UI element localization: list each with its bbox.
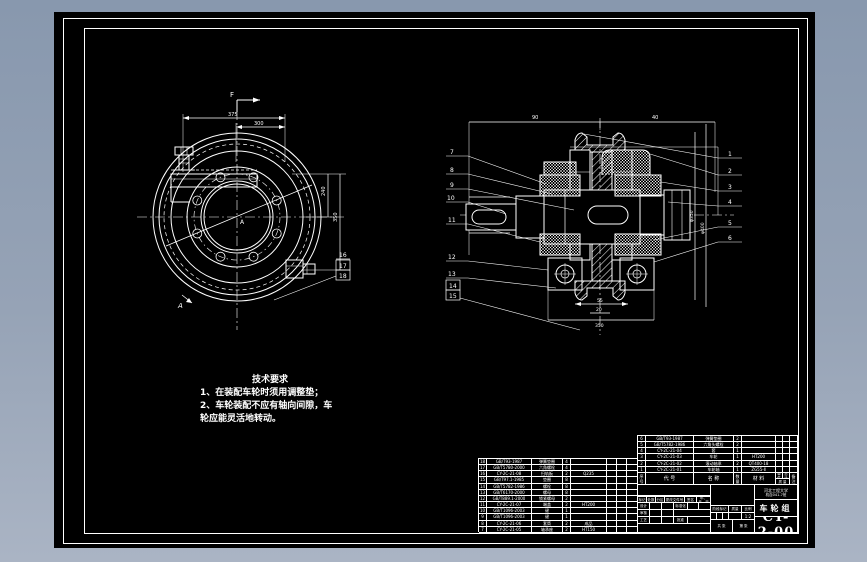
callout-16: 16 [339, 252, 347, 259]
tech-req-line: 轮应能灵活地转动。 [200, 413, 430, 426]
callout-4: 4 [728, 199, 732, 206]
callout-15: 15 [449, 293, 457, 300]
tech-req-title: 技术要求 [200, 374, 430, 387]
callout-7: 7 [450, 149, 454, 156]
tb-org-line2: 机自041-7班 [766, 493, 787, 497]
callout-6: 6 [728, 235, 732, 242]
callout-11: 11 [448, 217, 456, 224]
tb-stage-box [710, 484, 755, 506]
tb-drawing-no: CY-2-00 [754, 516, 798, 533]
callout-3: 3 [728, 184, 732, 191]
bom-cell: CY-2C-21-05 [487, 527, 532, 533]
callout-12: 12 [448, 254, 456, 261]
bom-row: 7CY-2C-21-05轴承座2HT150 [479, 527, 638, 533]
bom-cell: 2 [563, 527, 571, 533]
dim-front-right2: 350 [333, 212, 339, 222]
callout-2: 2 [728, 168, 732, 175]
callout-13: 13 [448, 271, 456, 278]
callout-10: 10 [447, 195, 455, 202]
view-arrow-letter: F [230, 91, 234, 99]
tb-org-box: 河北工程大学 机自041-7班 [754, 484, 798, 500]
tb-sheet-no: 第 张 [732, 519, 755, 533]
tb-part-name: 车轮组 [754, 499, 798, 517]
dim-sec-bot2: 20 [596, 307, 602, 313]
section-letter: A [177, 302, 183, 310]
bom-cell: 轴承座 [532, 527, 563, 533]
bom-table-left: 18GB/T93-1987弹簧垫圈417GB/T5780-2000六角螺栓416… [478, 458, 638, 532]
dim-sec-top1: 90 [532, 115, 538, 121]
dim-front-top1: 375 [228, 112, 238, 118]
dim-sec-top2: 40 [652, 115, 658, 121]
dim-sec-side2: φ400 [700, 222, 706, 234]
bom-cell [617, 527, 627, 533]
front-view-text: F A A 375 300 240 350 16 17 18 [177, 91, 347, 310]
bom-cell: 7 [479, 527, 487, 533]
dim-sec-side1: φ350 [689, 210, 695, 222]
callout-18: 18 [339, 273, 347, 280]
tech-req-line: 2、车轮装配不应有轴向间隙，车 [200, 400, 430, 413]
front-view [137, 98, 350, 331]
tb-sheet-total: 共 张 [710, 519, 733, 533]
tb-rev-empty [637, 484, 711, 496]
callout-14: 14 [449, 283, 457, 290]
tech-req-line: 1、在装配车轮时须用调整垫； [200, 387, 430, 400]
dim-sec-bot1: 55 [597, 298, 603, 304]
bom-table-right: 6GB/T93-1987弹簧垫圈25GB/T5782-1986六角头螺栓24CY… [637, 435, 798, 472]
callout-5: 5 [728, 220, 732, 227]
callout-8: 8 [450, 167, 454, 174]
callout-17: 17 [339, 263, 347, 270]
bom-cell: HT150 [571, 527, 607, 533]
tb-bottom-empty [637, 523, 711, 533]
dim-front-right1: 240 [321, 186, 327, 196]
callout-9: 9 [450, 182, 454, 189]
section-view [446, 118, 742, 335]
technical-requirements: 技术要求 1、在装配车轮时须用调整垫； 2、车轮装配不应有轴向间隙，车 轮应能灵… [200, 374, 430, 426]
drawing-canvas: F A A 375 300 240 350 16 17 18 [54, 12, 815, 548]
callout-1: 1 [728, 151, 732, 158]
dim-front-top2: 300 [254, 121, 264, 127]
center-letter: A [240, 219, 245, 226]
dim-sec-boltspan: 350 [595, 323, 604, 329]
bom-cell [607, 527, 617, 533]
